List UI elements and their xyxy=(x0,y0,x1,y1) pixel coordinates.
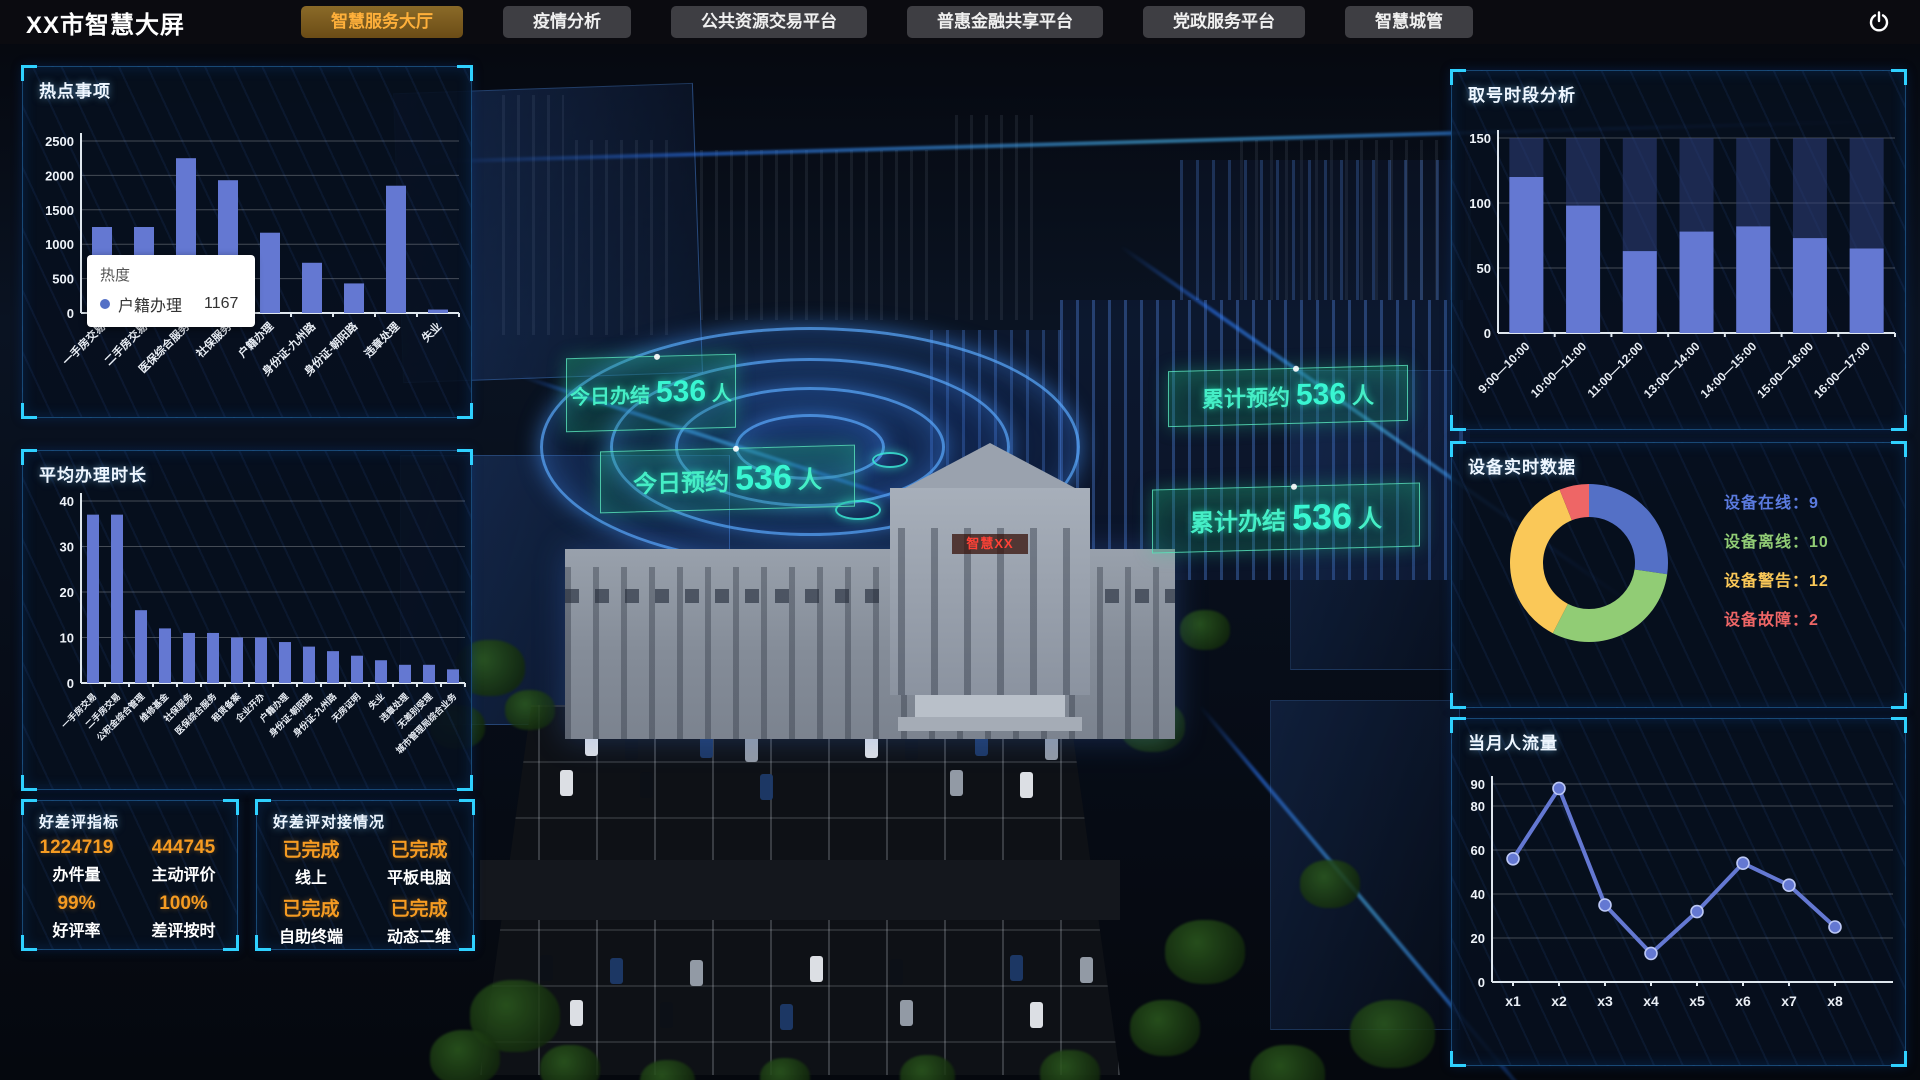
legend-value: 2 xyxy=(1809,612,1819,629)
svg-text:0: 0 xyxy=(67,306,74,321)
svg-text:0: 0 xyxy=(1484,326,1491,341)
svg-text:60: 60 xyxy=(1471,843,1485,858)
car xyxy=(760,774,773,800)
car xyxy=(890,959,903,985)
lit-building xyxy=(1180,160,1480,300)
avg-time-panel: 平均办理时长 010203040一手房交易二手房交易公积金综合管理维修基金社保服… xyxy=(22,450,472,790)
tooltip-series: 户籍办理 xyxy=(118,292,182,316)
rating-status-item-1: 已完成平板电脑 xyxy=(387,835,451,888)
car xyxy=(1030,1002,1043,1028)
tag-label: 累计办结 xyxy=(1190,501,1286,539)
car xyxy=(570,1000,583,1026)
tag-value: 536 xyxy=(735,458,792,498)
svg-text:2000: 2000 xyxy=(45,168,74,183)
rating-metric-label: 主动评价 xyxy=(151,861,215,885)
rating-metrics-panel: 好差评指标 1224719办件量444745主动评价99%好评率100%差评按时 xyxy=(22,800,238,950)
tag-label: 今日预约 xyxy=(633,461,729,499)
nav-tab-5[interactable]: 智慧城管 xyxy=(1345,6,1473,38)
svg-text:x7: x7 xyxy=(1781,993,1797,1009)
svg-text:50: 50 xyxy=(1477,261,1491,276)
svg-text:x2: x2 xyxy=(1551,993,1567,1009)
car xyxy=(1010,955,1023,981)
car xyxy=(1020,772,1033,798)
rating-status-value: 已完成 xyxy=(282,835,339,862)
legend-label: 设备离线： xyxy=(1724,534,1809,551)
svg-text:x4: x4 xyxy=(1643,993,1659,1009)
tag-label: 今日办结 xyxy=(570,379,650,410)
nav-tab-0[interactable]: 智慧服务大厅 xyxy=(301,6,463,38)
rating-status-label: 动态二维 xyxy=(387,923,451,947)
device-legend: 设备在线：9设备离线：10设备警告：12设备故障：2 xyxy=(1724,489,1829,645)
svg-text:违章处理: 违章处理 xyxy=(361,319,402,360)
tree xyxy=(1130,1000,1200,1056)
rating-metric-label: 差评按时 xyxy=(151,917,215,941)
tag-value: 536 xyxy=(656,375,706,410)
svg-text:14:00—15:00: 14:00—15:00 xyxy=(1698,339,1760,401)
svg-text:1500: 1500 xyxy=(45,203,74,218)
holo-slab xyxy=(1270,700,1460,1030)
building-steps xyxy=(915,695,1065,717)
svg-text:x6: x6 xyxy=(1735,993,1751,1009)
car xyxy=(900,1000,913,1026)
hot-items-chart: 05001000150020002500一手房交易二手房交易医保综合服务社保服务… xyxy=(23,67,473,419)
scene-tag-3: 累计办结536 人 xyxy=(1152,482,1420,553)
rating-status-value: 已完成 xyxy=(387,894,451,921)
nav-tab-2[interactable]: 公共资源交易平台 xyxy=(671,6,867,38)
rating-metric-label: 办件量 xyxy=(40,861,114,885)
building-silhouette xyxy=(700,150,940,320)
power-button[interactable] xyxy=(1864,7,1894,37)
tag-value: 536 xyxy=(1292,495,1352,539)
radar-ring-small xyxy=(872,452,908,468)
device-data-panel: 设备实时数据 设备在线：9设备离线：10设备警告：12设备故障：2 xyxy=(1451,442,1906,708)
tree xyxy=(1250,1045,1325,1080)
tree xyxy=(505,690,555,730)
svg-text:30: 30 xyxy=(60,540,74,555)
svg-text:2500: 2500 xyxy=(45,134,74,149)
building-sign: 智慧XX xyxy=(952,534,1028,554)
rating-status-label: 自助终端 xyxy=(279,923,343,947)
svg-text:10: 10 xyxy=(60,631,74,646)
tooltip-title: 热度 xyxy=(100,264,240,285)
avg-time-chart: 010203040一手房交易二手房交易公积金综合管理维修基金社保服务医保综合服务… xyxy=(23,451,473,791)
monthly-traffic-chart: 02040608090x1x2x3x4x5x6x7x8 xyxy=(1452,719,1907,1067)
panel-title: 当月人流量 xyxy=(1468,729,1558,754)
tag-value: 536 xyxy=(1296,377,1346,412)
rating-status-value: 已完成 xyxy=(279,894,343,921)
rating-status-grid: 已完成线上已完成平板电脑已完成自助终端已完成动态二维 xyxy=(257,835,473,943)
car xyxy=(660,1002,673,1028)
device-legend-row-1: 设备离线：10 xyxy=(1724,528,1829,552)
tag-label: 累计预约 xyxy=(1202,380,1290,414)
svg-text:40: 40 xyxy=(1471,887,1485,902)
rating-status-item-3: 已完成动态二维 xyxy=(387,894,451,947)
nav-tab-1[interactable]: 疫情分析 xyxy=(503,6,631,38)
tag-unit: 人 xyxy=(1358,498,1382,534)
rating-metric-item-3: 100%差评按时 xyxy=(151,893,215,941)
car xyxy=(745,736,758,762)
svg-text:1000: 1000 xyxy=(45,237,74,252)
tree xyxy=(1180,610,1230,650)
legend-value: 9 xyxy=(1809,495,1819,512)
tag-unit: 人 xyxy=(1352,378,1374,411)
svg-text:x1: x1 xyxy=(1505,993,1521,1009)
svg-text:x5: x5 xyxy=(1689,993,1705,1009)
nav-tab-3[interactable]: 普惠金融共享平台 xyxy=(907,6,1103,38)
tree xyxy=(1350,1000,1435,1068)
tooltip-value: 1167 xyxy=(204,295,238,313)
device-legend-row-3: 设备故障：2 xyxy=(1724,606,1829,630)
svg-text:失业: 失业 xyxy=(419,319,444,344)
rating-status-label: 平板电脑 xyxy=(387,864,451,888)
power-icon xyxy=(1867,10,1891,34)
svg-text:9:00—10:00: 9:00—10:00 xyxy=(1475,339,1532,396)
nav-tab-4[interactable]: 党政服务平台 xyxy=(1143,6,1305,38)
svg-text:16:00—17:00: 16:00—17:00 xyxy=(1811,339,1873,401)
tree xyxy=(430,1030,500,1080)
svg-text:40: 40 xyxy=(60,494,74,509)
svg-text:80: 80 xyxy=(1471,799,1485,814)
legend-label: 设备在线： xyxy=(1724,495,1809,512)
svg-text:x3: x3 xyxy=(1597,993,1613,1009)
smart-city-dashboard: 智慧XX 今日办结536 人今日预约536 人累计预约536 人累计办结536 … xyxy=(0,0,1920,1080)
panel-title: 设备实时数据 xyxy=(1468,453,1576,478)
car xyxy=(810,956,823,982)
legend-value: 12 xyxy=(1809,573,1829,590)
car xyxy=(610,958,623,984)
page-title: XX市智慧大屏 xyxy=(26,5,185,40)
rating-status-panel: 好差评对接情况 已完成线上已完成平板电脑已完成自助终端已完成动态二维 xyxy=(256,800,474,950)
tag-unit: 人 xyxy=(798,459,822,495)
car xyxy=(950,770,963,796)
scene-tag-0: 今日办结536 人 xyxy=(566,354,736,432)
svg-text:20: 20 xyxy=(60,585,74,600)
car xyxy=(780,1004,793,1030)
panel-title: 取号时段分析 xyxy=(1468,81,1576,106)
rating-metric-value: 99% xyxy=(52,893,100,915)
monthly-traffic-panel: 当月人流量 02040608090x1x2x3x4x5x6x7x8 xyxy=(1451,718,1906,1066)
svg-text:0: 0 xyxy=(1478,975,1485,990)
parking-road xyxy=(480,860,1120,920)
legend-label: 设备警告： xyxy=(1724,573,1809,590)
building-steps xyxy=(898,717,1082,731)
svg-text:失业: 失业 xyxy=(366,691,387,712)
svg-text:13:00—14:00: 13:00—14:00 xyxy=(1641,339,1703,401)
rating-status-item-0: 已完成线上 xyxy=(282,835,339,888)
svg-text:20: 20 xyxy=(1471,931,1485,946)
nav-tabs: 智慧服务大厅疫情分析公共资源交易平台普惠金融共享平台党政服务平台智慧城管 xyxy=(301,6,1473,38)
building-pediment xyxy=(905,443,1075,488)
series-dot xyxy=(100,299,110,309)
queue-analysis-chart: 0501001509:00—10:0010:00—11:0011:00—12:0… xyxy=(1452,71,1907,431)
svg-text:15:00—16:00: 15:00—16:00 xyxy=(1754,339,1816,401)
building-portico xyxy=(890,488,1090,695)
scene-tag-2: 累计预约536 人 xyxy=(1168,365,1408,427)
rating-metric-value: 100% xyxy=(151,893,215,915)
tree xyxy=(1300,860,1360,908)
tag-unit: 人 xyxy=(712,376,732,406)
tree xyxy=(1165,920,1245,984)
rating-metric-item-2: 99%好评率 xyxy=(52,893,100,941)
device-legend-row-0: 设备在线：9 xyxy=(1724,489,1829,513)
top-nav-bar: XX市智慧大屏 智慧服务大厅疫情分析公共资源交易平台普惠金融共享平台党政服务平台… xyxy=(0,0,1920,44)
rating-metric-value: 444745 xyxy=(151,837,215,859)
panel-title: 热点事项 xyxy=(39,77,111,102)
device-legend-row-2: 设备警告：12 xyxy=(1724,567,1829,591)
chart-tooltip: 热度 户籍办理 1167 xyxy=(87,255,255,327)
queue-analysis-panel: 取号时段分析 0501001509:00—10:0010:00—11:0011:… xyxy=(1451,70,1906,430)
car xyxy=(540,955,553,981)
svg-text:150: 150 xyxy=(1469,131,1491,146)
scene-tag-1: 今日预约536 人 xyxy=(600,445,855,514)
car xyxy=(1080,957,1093,983)
rating-metric-item-1: 444745主动评价 xyxy=(151,837,215,885)
svg-text:90: 90 xyxy=(1471,777,1485,792)
rating-status-label: 线上 xyxy=(282,864,339,888)
rating-status-item-2: 已完成自助终端 xyxy=(279,894,343,947)
rating-metric-label: 好评率 xyxy=(52,917,100,941)
tree xyxy=(540,1045,600,1080)
svg-text:11:00—12:00: 11:00—12:00 xyxy=(1585,339,1647,401)
svg-text:100: 100 xyxy=(1469,196,1491,211)
device-donut-chart xyxy=(1452,443,1907,709)
car xyxy=(690,960,703,986)
car xyxy=(560,770,573,796)
svg-text:500: 500 xyxy=(52,272,74,287)
rating-metrics-grid: 1224719办件量444745主动评价99%好评率100%差评按时 xyxy=(23,835,237,943)
panel-title: 好差评指标 xyxy=(39,811,119,832)
panel-title: 好差评对接情况 xyxy=(273,811,385,832)
svg-text:10:00—11:00: 10:00—11:00 xyxy=(1528,339,1590,401)
rating-metric-item-0: 1224719办件量 xyxy=(40,837,114,885)
rating-status-value: 已完成 xyxy=(387,835,451,862)
rating-metric-value: 1224719 xyxy=(40,837,114,859)
hot-items-panel: 热点事项 05001000150020002500一手房交易二手房交易医保综合服… xyxy=(22,66,472,418)
legend-value: 10 xyxy=(1809,534,1829,551)
car xyxy=(640,772,653,798)
svg-text:x8: x8 xyxy=(1827,993,1843,1009)
panel-title: 平均办理时长 xyxy=(39,461,147,486)
legend-label: 设备故障： xyxy=(1724,612,1809,629)
svg-text:0: 0 xyxy=(67,676,74,691)
